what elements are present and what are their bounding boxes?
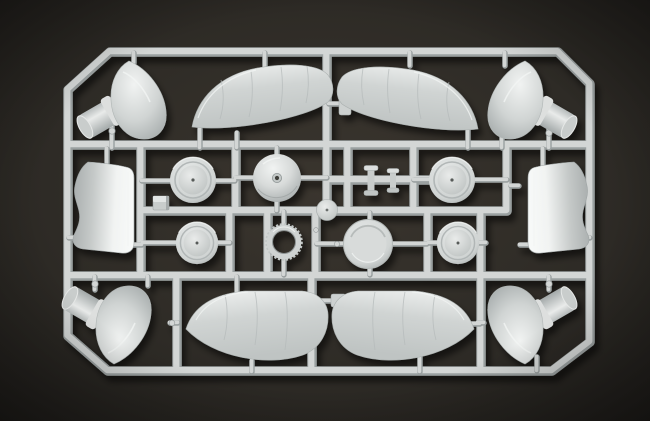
vignette-overlay — [0, 0, 650, 421]
sprue-photo-canvas — [0, 0, 650, 421]
photo-model-kit-sprue — [0, 0, 650, 421]
